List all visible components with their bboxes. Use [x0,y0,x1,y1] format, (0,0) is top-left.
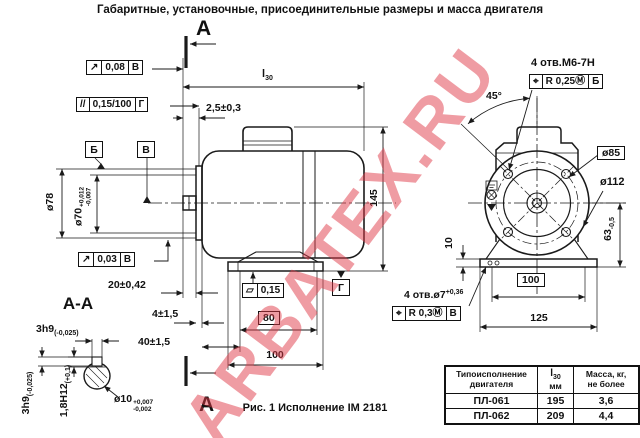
section-label-bottom: А [199,393,214,417]
drawing-title: Габаритные, установочные, присоединитель… [0,4,640,16]
side-view [148,127,396,271]
dim-key-depth: 1,8H12(+0,1) [58,359,72,423]
dim-key-width: 3h9(-0,025) [36,323,79,337]
section-label-top: А [196,17,211,41]
dim-d70: ø70+0,012-0,007 [73,175,94,237]
table-row: ПЛ-061 195 3,6 [445,393,639,408]
front-view [468,98,628,294]
engineering-drawing: Габаритные, установочные, присоединитель… [0,0,640,438]
dim-d112: ø112 [600,176,624,188]
col-l30: l30мм [537,366,573,393]
figure-caption: Рис. 1 Исполнение IM 2181 [230,402,400,414]
table-header-row: Типоисполнениедвигателя l30мм Масса, кг,… [445,366,639,393]
mmc-icon: Ⓜ [575,76,585,87]
dim-angle: 45° [486,90,502,102]
dim-key-height: 3h9(-0,025) [20,361,34,425]
dim-gap2: 4±1,5 [152,308,178,320]
dim-shaft-diameter: ø10+0,007-0,002 [114,393,153,414]
tolerance-frame-flatness: ▱0,15 [242,283,284,298]
dim-gap: 2,5±0,3 [206,102,241,114]
tolerance-frame-position-m6: ⌖R 0,25ⓂБ [529,74,603,89]
section-view [38,339,119,397]
position-icon: ⌖ [530,75,542,88]
dim-foot-height: 10 [443,233,455,253]
flatness-icon: ▱ [243,284,257,297]
section-view-title: А-А [52,294,104,314]
note-m6-holes: 4 отв.М6-7Н [531,57,595,69]
dim-height: 145 [368,182,380,214]
dim-foot-length: 100 [260,349,290,361]
section-cut-marks [186,36,216,386]
dim-hole-span: 100 [517,273,545,287]
tolerance-frame-position-d7: ⌖R 0,3ⓂВ [392,306,461,321]
table-row: ПЛ-062 209 4,4 [445,408,639,424]
dim-shaft-length: 20±0,42 [108,279,146,291]
note-d7-holes: 4 отв.ø7+0,36 [404,289,463,301]
tolerance-frame-parallelism: //0,15/100Г [76,97,148,112]
dim-l30: l30 [262,68,273,82]
mmc-icon: Ⓜ [433,308,443,319]
dim-d85: ø85 [597,146,625,160]
dim-base-width: 125 [522,312,556,324]
datum-flag-v: В [137,141,155,158]
col-mass: Масса, кг,не более [574,366,639,393]
motor-spec-table: Типоисполнениедвигателя l30мм Масса, кг,… [444,365,640,425]
dim-axis-height: 63-0,5 [602,207,616,251]
datum-flag-b: Б [85,141,103,158]
position-icon: ⌖ [393,307,405,320]
dim-d78: ø78 [44,182,56,222]
parallelism-icon: // [77,98,89,111]
datum-flag-g: Г [332,279,350,296]
dim-foot-span: 80 [258,311,280,325]
dim-l31: 40±1,5 [138,336,170,348]
col-model: Типоисполнениедвигателя [445,366,537,393]
runout-icon: ↗ [87,61,101,74]
tolerance-frame-runout-face: ↗0,08В [86,60,143,75]
tolerance-frame-runout-spigot: ↗0,03В [78,252,135,267]
runout-icon: ↗ [79,253,93,266]
